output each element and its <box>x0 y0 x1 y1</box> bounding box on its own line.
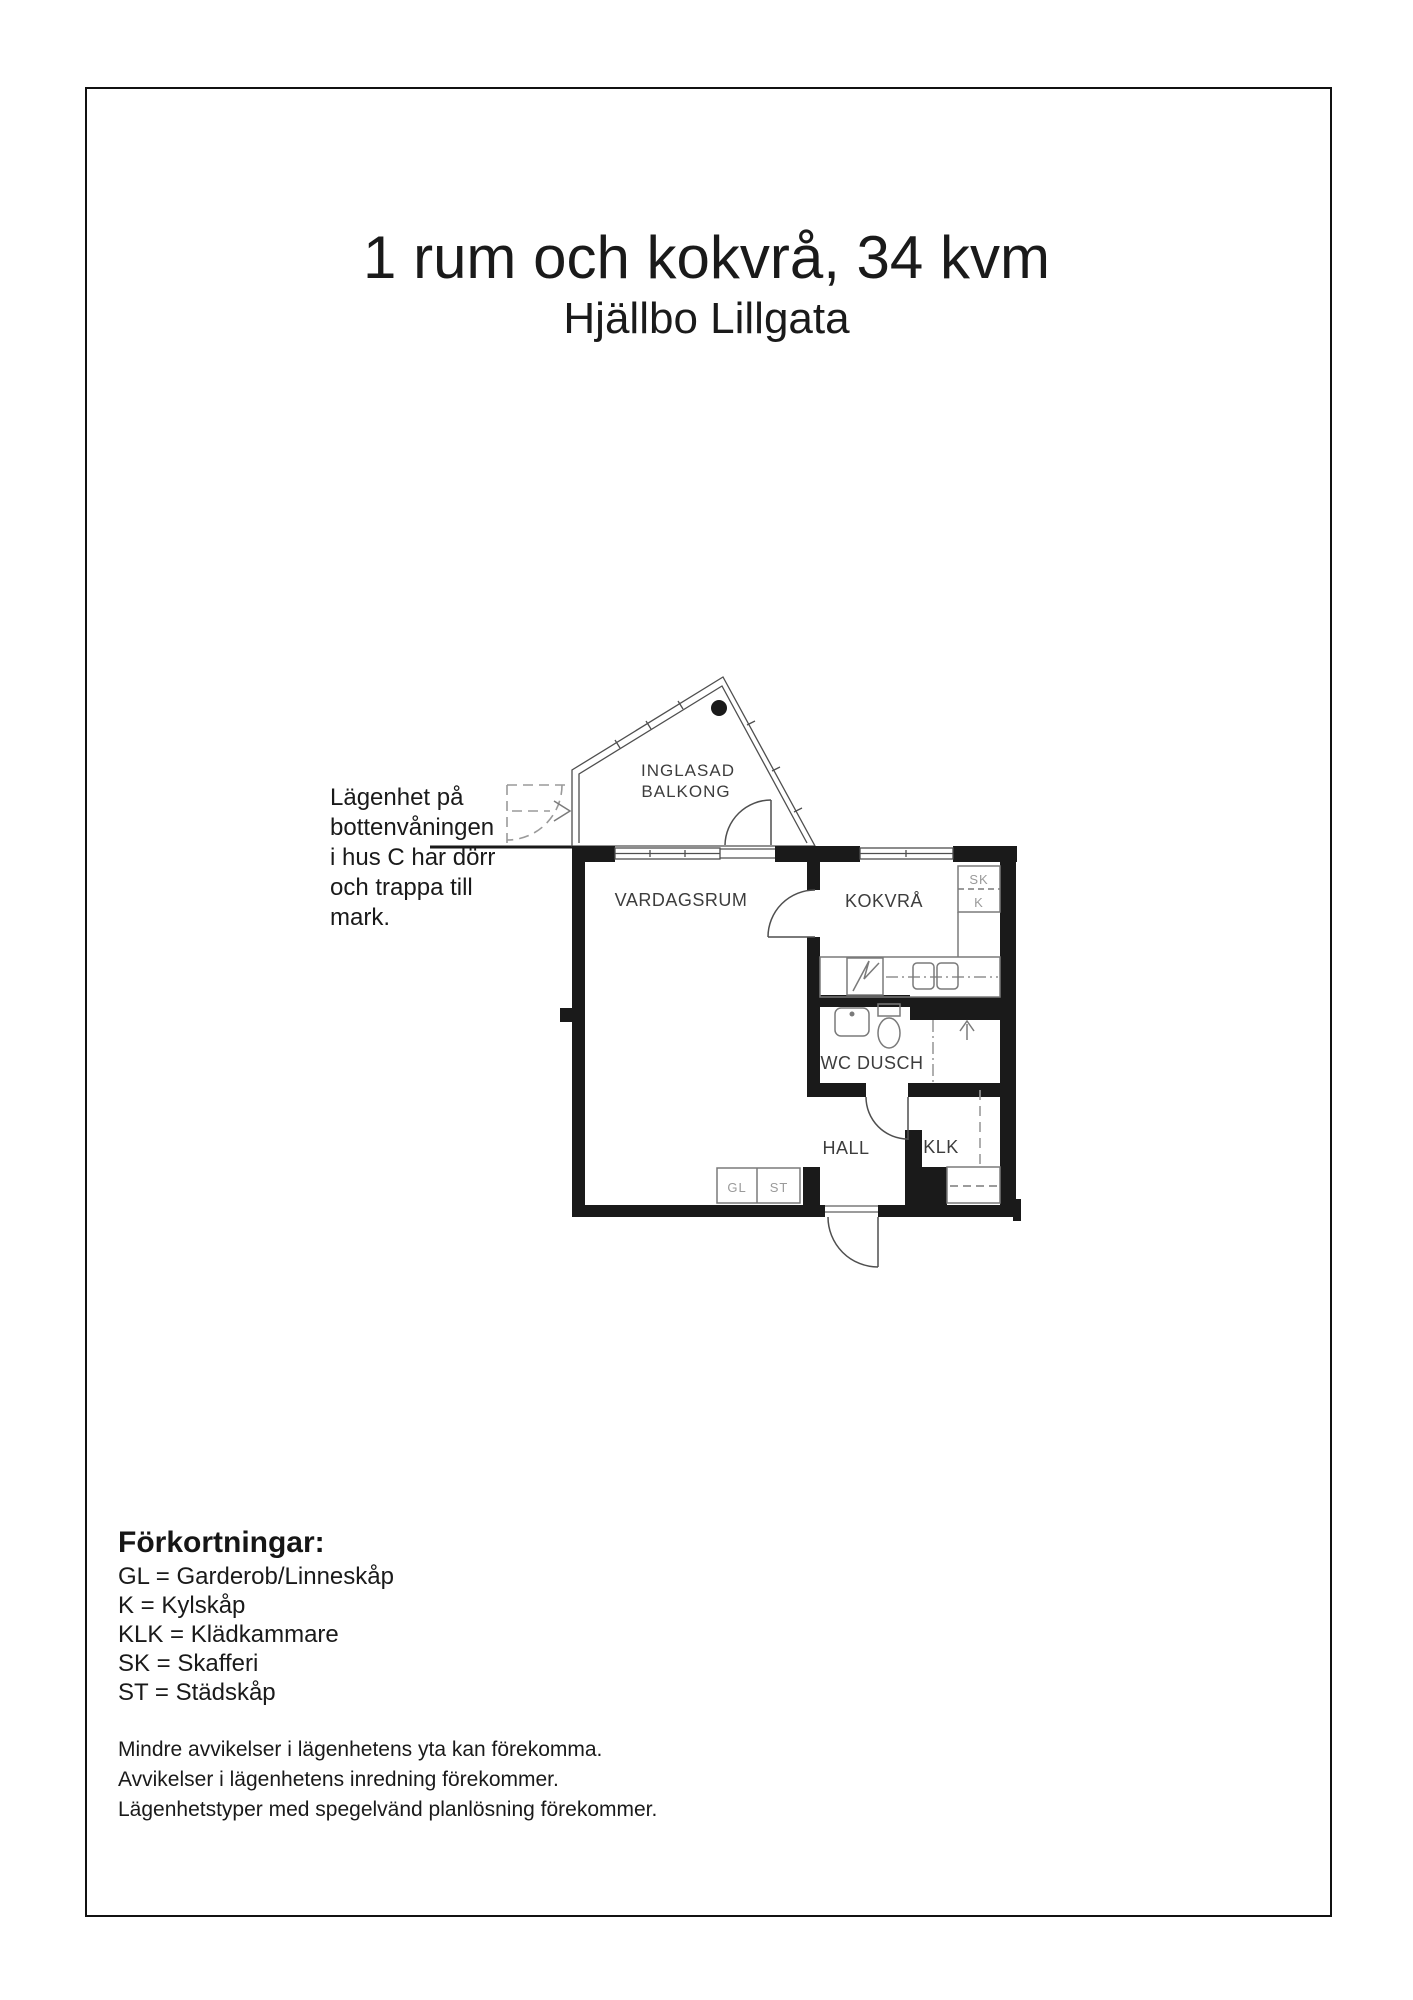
door-swing-dashed <box>507 785 562 840</box>
balcony: INGLASAD BALKONG <box>572 677 815 846</box>
wc-bottom-wall-left <box>820 1083 866 1097</box>
wc-door <box>866 1097 908 1140</box>
balcony-door <box>725 800 771 845</box>
abbreviation-item: SK = Skafferi <box>118 1649 394 1678</box>
fridge-label: K <box>974 895 984 910</box>
disclaimer-notes: Mindre avvikelser i lägenhetens yta kan … <box>118 1735 657 1825</box>
cleaning-closet-label: ST <box>770 1180 789 1195</box>
living-kitchen-wall <box>807 937 820 1097</box>
entrance-door <box>825 1206 878 1267</box>
abbreviation-item: GL = Garderob/Linneskåp <box>118 1562 394 1591</box>
balcony-post-dot <box>711 700 727 716</box>
kitchen-door <box>768 890 815 937</box>
abbreviations-heading: Förkortningar: <box>118 1524 394 1562</box>
wc-label: WC DUSCH <box>821 1053 924 1073</box>
room-labels: VARDAGSRUM KOKVRÅ WC DUSCH HALL KLK <box>615 890 959 1158</box>
kitchen-sink-basin <box>937 963 958 989</box>
disclaimer-line: Avvikelser i lägenhetens inredning förek… <box>118 1765 657 1795</box>
page-subtitle: Hjällbo Lillgata <box>0 297 1413 341</box>
left-wall-pier <box>560 1008 572 1022</box>
exit-arrow-icon <box>554 801 570 821</box>
bottom-wall-left <box>572 1205 825 1217</box>
kitchen-label: KOKVRÅ <box>845 891 923 911</box>
kitchen-sink-basin <box>913 963 934 989</box>
living-room-label: VARDAGSRUM <box>615 890 748 910</box>
entrance-door-swing <box>828 1217 878 1267</box>
wc-bottom-wall-right <box>908 1083 1000 1097</box>
pantry-label: SK <box>969 872 988 887</box>
disclaimer-line: Mindre avvikelser i lägenhetens yta kan … <box>118 1735 657 1765</box>
toilet-bowl-icon <box>878 1018 900 1048</box>
balcony-label-line1: INGLASAD <box>641 761 735 780</box>
hall-label: HALL <box>822 1138 869 1158</box>
bottom-wall-right <box>878 1205 1017 1217</box>
abbreviation-item: ST = Städskåp <box>118 1678 394 1707</box>
kitchen-door-swing <box>768 890 815 937</box>
wc-door-swing <box>866 1097 908 1139</box>
stove-icon <box>853 961 879 991</box>
klk-closet <box>947 1167 1000 1203</box>
abbreviation-item: KLK = Klädkammare <box>118 1620 394 1649</box>
wardrobe-label: GL <box>727 1180 746 1195</box>
abbreviation-item: K = Kylskåp <box>118 1591 394 1620</box>
balcony-label-line2: BALKONG <box>641 782 730 801</box>
abbreviations: Förkortningar: GL = Garderob/Linneskåp K… <box>118 1524 394 1707</box>
shower-wall <box>910 997 1000 1020</box>
faucet-dot <box>850 1012 855 1017</box>
page-title: 1 rum och kokvrå, 34 kvm <box>0 228 1413 288</box>
balcony-door-swing <box>725 800 771 845</box>
klk-wall-mass <box>905 1167 947 1205</box>
exterior-door-dashed <box>430 785 572 847</box>
kitchen-fittings: SK K <box>820 866 1000 997</box>
right-wall <box>1000 846 1016 1217</box>
floor-plan: INGLASAD BALKONG <box>350 490 1110 1310</box>
left-wall <box>572 846 585 1217</box>
floor-drain-arrow-icon <box>960 1021 974 1040</box>
disclaimer-line: Lägenhetstyper med spegelvänd planlösnin… <box>118 1795 657 1825</box>
klk-label: KLK <box>923 1137 959 1157</box>
